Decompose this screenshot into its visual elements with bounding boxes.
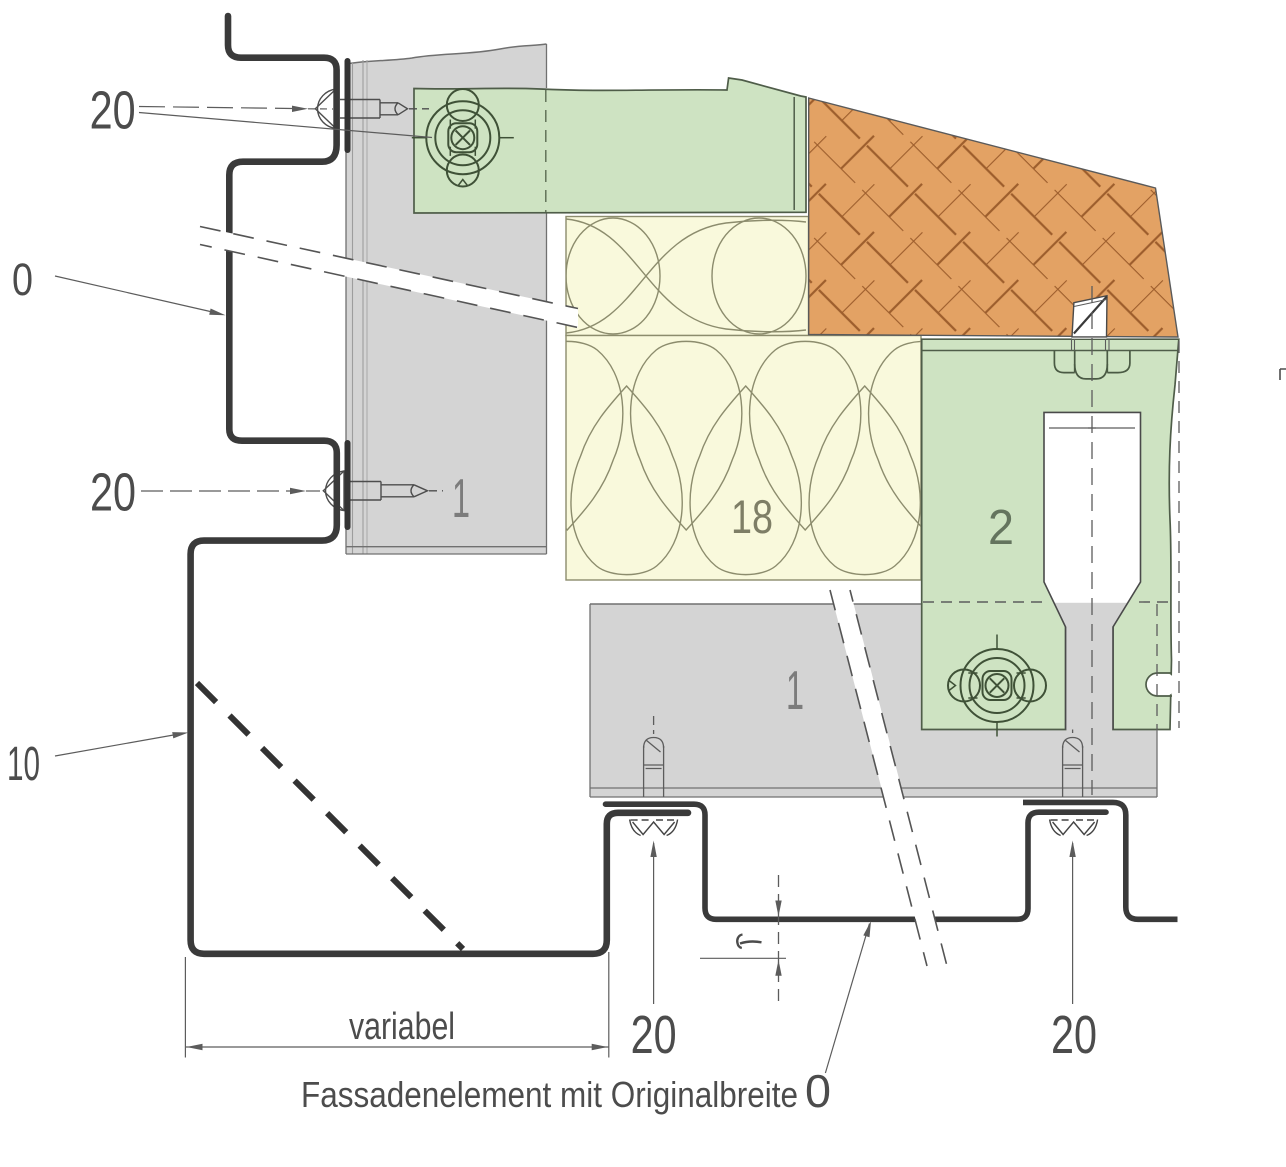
svg-text:1: 1 <box>786 659 804 721</box>
svg-text:0: 0 <box>12 254 33 305</box>
svg-text:18: 18 <box>731 490 773 543</box>
svg-text:20: 20 <box>1051 1005 1097 1065</box>
svg-text:20: 20 <box>631 1005 677 1065</box>
svg-text:1: 1 <box>452 467 470 529</box>
svg-text:10: 10 <box>7 738 40 791</box>
svg-text:2: 2 <box>988 501 1014 555</box>
svg-text:variabel: variabel <box>349 1006 455 1048</box>
svg-text:20: 20 <box>90 463 136 523</box>
svg-text:20: 20 <box>90 81 136 141</box>
svg-text:0: 0 <box>805 1065 831 1117</box>
svg-text:Fassadenelement mit Originalbr: Fassadenelement mit Originalbreite <box>301 1074 798 1115</box>
